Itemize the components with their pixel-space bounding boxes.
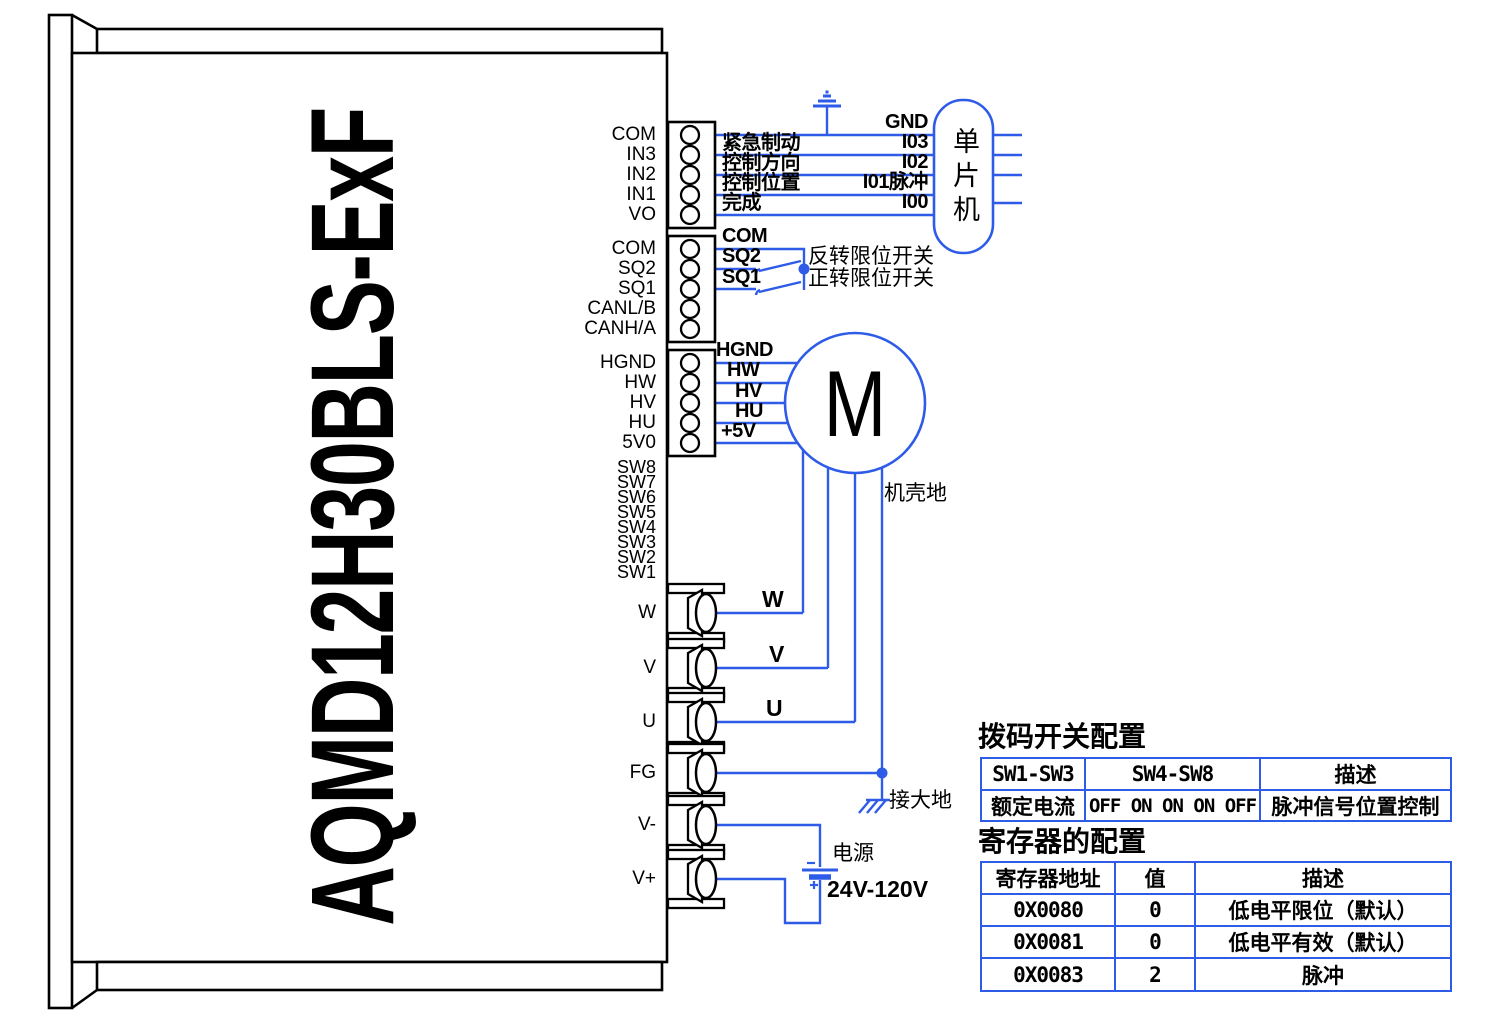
wire-label-sq1: SQ1 — [722, 267, 761, 288]
terminal-label-5v0: 5V0 — [546, 432, 656, 454]
terminal-label-in2: IN2 — [546, 164, 656, 186]
terminal-label-fg: FG — [546, 762, 656, 784]
signal-label-direction: 控制方向 — [722, 153, 800, 174]
label-forward-limit-switch: 正转限位开关 — [808, 268, 934, 289]
terminal-label-hgnd: HGND — [546, 352, 656, 374]
terminal-label-in1: IN1 — [546, 184, 656, 206]
label-voltage-range: 24V-120V — [827, 878, 928, 901]
terminal-label-v: V — [546, 657, 656, 679]
terminal-label-hv: HV — [546, 392, 656, 414]
reg-table: 寄存器地址 值 描述 0X0080 0 低电平限位（默认） 0X0081 0 低… — [980, 861, 1452, 992]
signal-label-i00: I00 — [798, 192, 928, 213]
signal-label-done: 完成 — [722, 193, 761, 214]
dip-table-header-sw4-sw8: SW4-SW8 — [1084, 759, 1259, 789]
terminal-label-vminus: V- — [546, 814, 656, 836]
wire-label-hgnd: HGND — [716, 340, 773, 361]
terminal-label-sq2: SQ2 — [546, 258, 656, 280]
terminal-block-hall — [668, 350, 715, 456]
terminal-label-vplus: V+ — [546, 868, 656, 890]
reg-table-desc-0x0081: 低电平有效（默认） — [1194, 925, 1450, 957]
reg-table-title: 寄存器的配置 — [978, 827, 1146, 857]
spade-terminal-w — [668, 584, 724, 642]
reg-table-addr-0x0081: 0X0081 — [982, 925, 1114, 957]
wiring-diagram: AQMD12H30BLS-ExF COM IN3 IN2 IN1 VO COM … — [0, 0, 1500, 1026]
terminal-label-w: W — [546, 602, 656, 624]
terminal-label-in3: IN3 — [546, 144, 656, 166]
terminal-label-hu: HU — [546, 412, 656, 434]
dip-table-title: 拨码开关配置 — [978, 722, 1146, 752]
spade-terminal-vminus — [668, 796, 724, 854]
wire-label-5v: +5V — [721, 421, 756, 442]
label-chassis-ground: 机壳地 — [884, 483, 947, 504]
dip-table-header-sw1-sw3: SW1-SW3 — [982, 759, 1084, 789]
label-reverse-limit-switch: 反转限位开关 — [808, 246, 934, 267]
reg-table-desc-0x0083: 脉冲 — [1194, 957, 1450, 990]
terminal-block-io — [668, 122, 715, 228]
terminal-label-vo: VO — [546, 204, 656, 226]
terminal-label-canl: CANL/B — [546, 298, 656, 320]
dip-table-cell-pulse-position: 脉冲信号位置控制 — [1259, 789, 1450, 820]
spade-terminal-u — [668, 693, 724, 751]
terminal-label-u: U — [546, 711, 656, 733]
dip-table-cell-rated-current: 额定电流 — [982, 789, 1084, 820]
terminal-label-com2: COM — [546, 238, 656, 260]
signal-label-i03: I03 — [798, 132, 928, 153]
wire-label-com: COM — [722, 226, 767, 247]
dip-table-header-desc: 描述 — [1259, 759, 1450, 789]
signal-label-position: 控制位置 — [722, 173, 800, 194]
mcu-label: 单片机 — [948, 127, 980, 247]
wire-label-hv: HV — [735, 381, 762, 402]
signal-label-estop: 紧急制动 — [722, 133, 800, 154]
signal-label-gnd: GND — [798, 112, 928, 133]
label-power-supply: 电源 — [832, 843, 874, 864]
terminal-label-sq1: SQ1 — [546, 278, 656, 300]
reg-table-addr-0x0083: 0X0083 — [982, 957, 1114, 990]
spade-terminal-fg — [668, 744, 724, 802]
wire-label-phase-v: V — [769, 643, 784, 666]
device-model-title: AQMD12H30BLS-ExF — [288, 97, 418, 937]
wire-label-sq2: SQ2 — [722, 246, 761, 267]
wire-label-hu: HU — [735, 401, 763, 422]
reg-table-header-address: 寄存器地址 — [982, 863, 1114, 893]
spade-terminal-vplus — [668, 850, 724, 908]
wire-label-phase-w: W — [762, 588, 784, 611]
signal-label-i02: I02 — [798, 152, 928, 173]
label-earth-ground: 接大地 — [889, 790, 952, 811]
terminal-block-limit-can — [668, 236, 715, 342]
reg-table-header-desc: 描述 — [1194, 863, 1450, 893]
terminal-label-hw: HW — [546, 372, 656, 394]
dip-label-sw1: SW1 — [546, 564, 656, 580]
terminal-label-canh: CANH/A — [546, 318, 656, 340]
reg-table-val-0x0081: 0 — [1114, 925, 1194, 957]
reg-table-desc-0x0080: 低电平限位（默认） — [1194, 893, 1450, 925]
wire-label-phase-u: U — [766, 697, 783, 720]
terminal-label-com1: COM — [546, 124, 656, 146]
wire-label-hw: HW — [727, 360, 759, 381]
dip-table: SW1-SW3 SW4-SW8 描述 额定电流 OFF ON ON ON OFF… — [980, 757, 1452, 822]
motor-symbol: M — [815, 356, 895, 451]
reg-table-header-value: 值 — [1114, 863, 1194, 893]
signal-label-i01: I01脉冲 — [798, 172, 928, 193]
reg-table-val-0x0080: 0 — [1114, 893, 1194, 925]
reg-table-addr-0x0080: 0X0080 — [982, 893, 1114, 925]
reg-table-val-0x0083: 2 — [1114, 957, 1194, 990]
dip-table-cell-switch-states: OFF ON ON ON OFF — [1084, 789, 1259, 820]
spade-terminal-v — [668, 639, 724, 697]
